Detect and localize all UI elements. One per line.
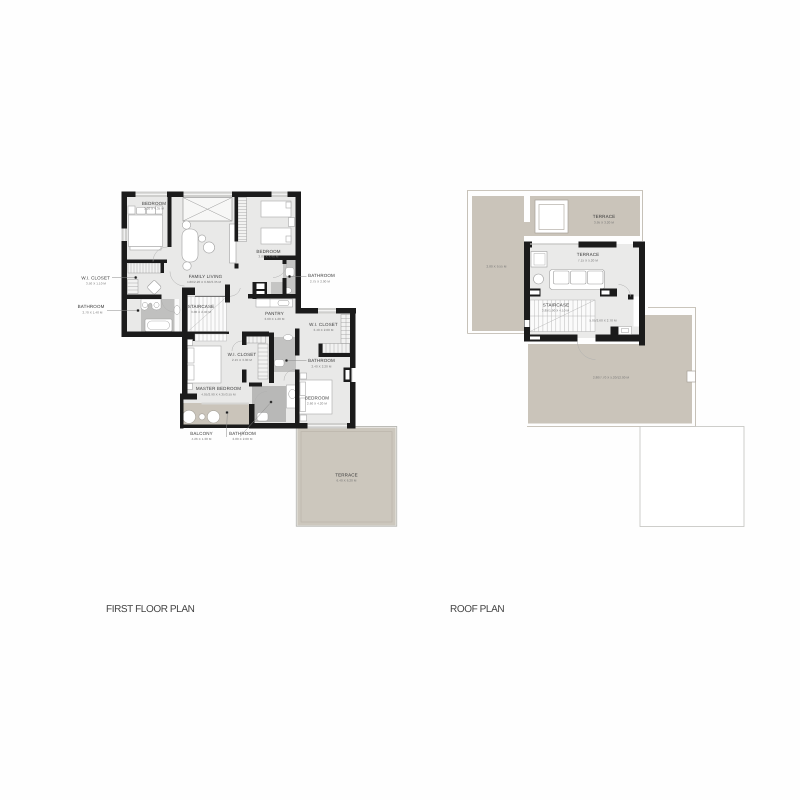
svg-text:3.40 X 2.00 M: 3.40 X 2.00 M	[314, 328, 334, 332]
svg-text:7.15 X 5.20 M: 7.15 X 5.20 M	[578, 259, 598, 263]
svg-text:TERRACE: TERRACE	[335, 473, 358, 478]
svg-text:4.05/2.90 X 4.35/3.55 M: 4.05/2.90 X 4.35/3.55 M	[201, 393, 236, 397]
svg-text:BEDROOM: BEDROOM	[305, 396, 329, 401]
svg-text:2.60 X 4.20 M: 2.60 X 4.20 M	[307, 402, 327, 406]
svg-text:2.70 X 1.40 M: 2.70 X 1.40 M	[83, 311, 103, 315]
svg-text:2.40 X 2.20 M: 2.40 X 2.20 M	[312, 365, 332, 369]
svg-text:FAMILY LIVING: FAMILY LIVING	[189, 274, 223, 279]
svg-text:W.I. CLOSET: W.I. CLOSET	[228, 352, 257, 357]
svg-text:BALCONY: BALCONY	[190, 431, 213, 436]
svg-text:2.15 X 3.30 M: 2.15 X 3.30 M	[232, 358, 252, 362]
svg-text:2.80/7.70 X 5.20/12.00 M: 2.80/7.70 X 5.20/12.00 M	[593, 376, 629, 380]
svg-text:PANTRY: PANTRY	[265, 311, 284, 316]
svg-text:BATHROOM: BATHROOM	[308, 273, 335, 278]
svg-text:BEDROOM: BEDROOM	[142, 201, 166, 206]
svg-text:3.60 X 1.20 M: 3.60 X 1.20 M	[265, 317, 285, 321]
svg-text:W.I. CLOSET: W.I. CLOSET	[81, 276, 110, 281]
svg-text:3.85/1.90 X 4.10 M: 3.85/1.90 X 4.10 M	[542, 309, 570, 313]
svg-text:MASTER BEDROOM: MASTER BEDROOM	[196, 386, 241, 391]
svg-text:ROOF PLAN: ROOF PLAN	[450, 604, 504, 615]
svg-text:3.00 X 2.40 M: 3.00 X 2.40 M	[191, 310, 211, 314]
svg-text:5.05/2.60 X 2.70 M: 5.05/2.60 X 2.70 M	[589, 319, 617, 323]
svg-text:3.95 X 3.20 M: 3.95 X 3.20 M	[594, 221, 614, 225]
svg-text:6.40 X 6.20 M: 6.40 X 6.20 M	[337, 479, 357, 483]
svg-text:STAIRCASE: STAIRCASE	[188, 304, 215, 309]
svg-text:3.20 X 4.35 M: 3.20 X 4.35 M	[144, 207, 164, 211]
svg-text:W.I. CLOSET: W.I. CLOSET	[309, 322, 338, 327]
svg-text:2.80 X 9.55 M: 2.80 X 9.55 M	[487, 265, 507, 269]
svg-text:BATHROOM: BATHROOM	[308, 358, 335, 363]
svg-text:BATHROOM: BATHROOM	[78, 304, 105, 309]
svg-text:STAIRCASE: STAIRCASE	[543, 303, 570, 308]
svg-text:4.80/2.20 X 6.60/3.35 M: 4.80/2.20 X 6.60/3.35 M	[187, 280, 222, 284]
svg-text:2.80 X 2.00 M: 2.80 X 2.00 M	[233, 437, 253, 441]
svg-text:3.05 X 4.45 M: 3.05 X 4.45 M	[259, 255, 279, 259]
svg-text:TERRACE: TERRACE	[577, 252, 600, 257]
svg-text:TERRACE: TERRACE	[593, 214, 616, 219]
svg-text:2.75 X 2.00 M: 2.75 X 2.00 M	[310, 280, 330, 284]
svg-text:FIRST FLOOR PLAN: FIRST FLOOR PLAN	[106, 604, 195, 615]
svg-text:3.50 X 1.10 M: 3.50 X 1.10 M	[86, 282, 106, 286]
svg-text:4.26 X 1.38 M: 4.26 X 1.38 M	[192, 437, 212, 441]
svg-text:BEDROOM: BEDROOM	[256, 249, 280, 254]
